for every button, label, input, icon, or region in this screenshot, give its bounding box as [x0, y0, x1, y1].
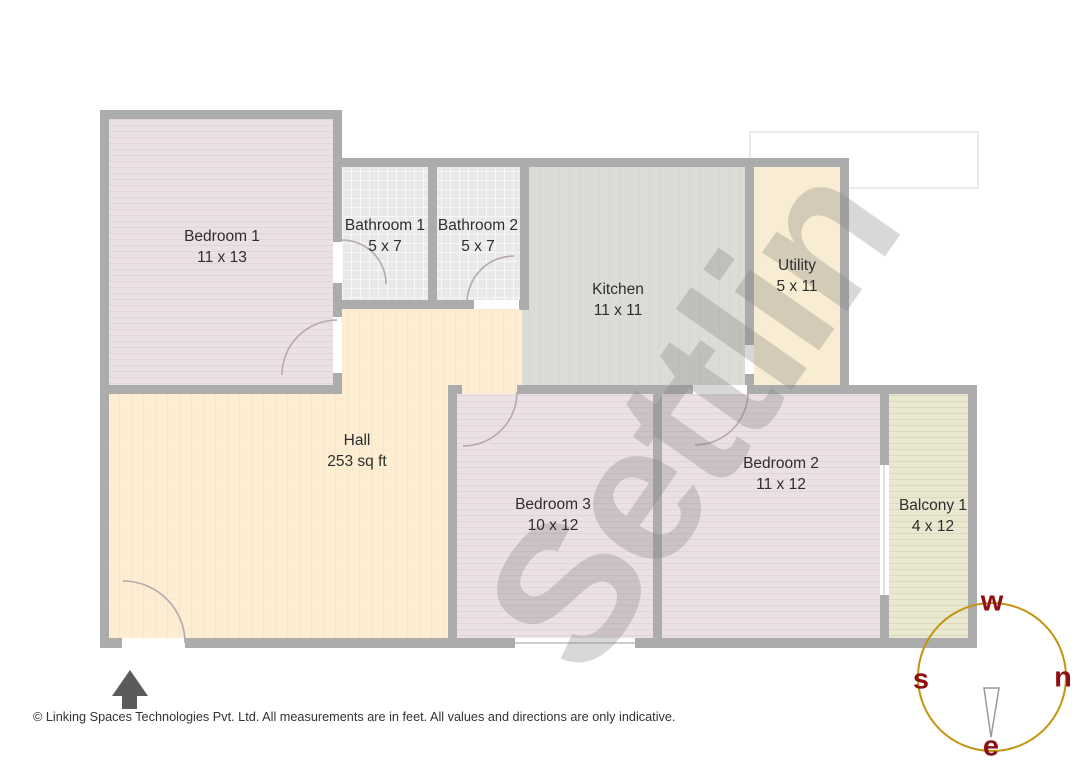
bedroom2-floor	[662, 394, 880, 638]
room-dims: 4 x 12	[899, 517, 967, 538]
wall-utility-right	[840, 167, 849, 385]
wall-bedroom2-right-b	[880, 595, 889, 638]
room-name: Hall	[327, 431, 386, 452]
wall-bedroom1-right-c	[333, 373, 342, 385]
compass-rose	[918, 603, 1066, 751]
label-kitchen: Kitchen 11 x 11	[592, 280, 644, 322]
room-dims: 11 x 12	[743, 475, 819, 496]
room-dims: 10 x 12	[515, 516, 591, 537]
wall-kitchen-left	[520, 167, 529, 310]
label-bathroom1: Bathroom 1 5 x 7	[345, 216, 425, 258]
room-name: Bedroom 2	[743, 454, 819, 475]
wall-bedroom1-right-b	[333, 283, 342, 317]
room-name: Utility	[776, 256, 817, 277]
wall-bottom-b	[185, 638, 515, 648]
wall-bathroom-bottom-left	[333, 300, 474, 309]
copyright-note: © Linking Spaces Technologies Pvt. Ltd. …	[33, 710, 675, 724]
floorplan-drawing	[0, 0, 1080, 764]
wall-bedroom2-right-a	[880, 394, 889, 465]
room-dims: 253 sq ft	[327, 452, 386, 473]
room-name: Bathroom 2	[438, 216, 518, 237]
wall-bedroom3-left	[448, 385, 457, 648]
wall-kitchen-utility-a	[745, 167, 754, 345]
room-dims: 5 x 11	[776, 277, 817, 298]
label-hall: Hall 253 sq ft	[327, 431, 386, 473]
wall-bedroom1-bottom	[100, 385, 342, 394]
label-bedroom1: Bedroom 1 11 x 13	[184, 227, 260, 269]
wall-bedrooms-top-c	[747, 385, 977, 394]
compass-letter-north: n	[1054, 662, 1072, 695]
room-dims: 11 x 13	[184, 248, 260, 269]
floorplan-page: Settlin Bedroom 1 11 x 13 Bathroom 1 5 x…	[0, 0, 1080, 764]
wall-balcony-right	[968, 385, 977, 648]
wall-left-outer	[100, 110, 109, 648]
hall-corridor-floor	[342, 309, 522, 394]
wall-bedroom1-top	[100, 110, 342, 119]
room-name: Kitchen	[592, 280, 644, 301]
compass-letter-south: s	[913, 664, 929, 697]
room-name: Bedroom 1	[184, 227, 260, 248]
hall-floor	[109, 394, 448, 638]
wall-bedrooms-top-b	[517, 385, 693, 394]
room-dims: 11 x 11	[592, 301, 644, 322]
compass-letter-east: e	[983, 731, 999, 764]
wall-bedroom3-bedroom2-divider	[653, 394, 662, 638]
north-arrow-icon	[112, 670, 148, 709]
room-name: Bathroom 1	[345, 216, 425, 237]
room-name: Bedroom 3	[515, 495, 591, 516]
label-bathroom2: Bathroom 2 5 x 7	[438, 216, 518, 258]
room-dims: 5 x 7	[438, 237, 518, 258]
wall-top-main	[333, 158, 849, 167]
compass-letter-west: w	[981, 586, 1004, 619]
label-bedroom3: Bedroom 3 10 x 12	[515, 495, 591, 537]
wall-bedroom1-right-a	[333, 119, 342, 242]
kitchen-floor	[522, 167, 745, 385]
room-dims: 5 x 7	[345, 237, 425, 258]
wall-kitchen-utility-b	[745, 374, 754, 385]
label-balcony1: Balcony 1 4 x 12	[899, 496, 967, 538]
label-bedroom2: Bedroom 2 11 x 12	[743, 454, 819, 496]
wall-bathroom-divider	[428, 167, 437, 309]
label-utility: Utility 5 x 11	[776, 256, 817, 298]
room-name: Balcony 1	[899, 496, 967, 517]
